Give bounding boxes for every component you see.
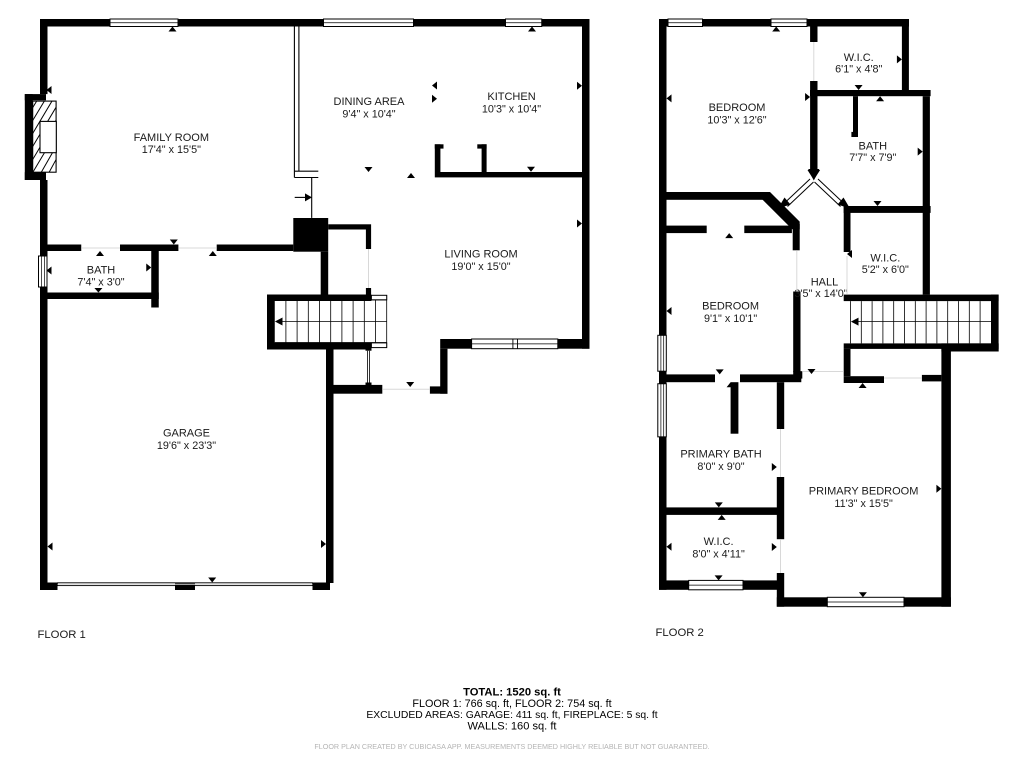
- svg-text:BEDROOM: BEDROOM: [702, 300, 759, 312]
- svg-text:BATH: BATH: [859, 140, 888, 152]
- svg-text:10'3" x 12'6": 10'3" x 12'6": [707, 114, 766, 126]
- svg-text:BATH: BATH: [87, 265, 116, 277]
- svg-text:FLOOR 1: 766 sq. ft, FLOOR 2:: FLOOR 1: 766 sq. ft, FLOOR 2: 754 sq. ft: [412, 698, 611, 710]
- svg-text:FLOOR 1: FLOOR 1: [38, 629, 86, 641]
- svg-text:FAMILY ROOM: FAMILY ROOM: [134, 132, 209, 144]
- svg-text:WALLS: 160 sq. ft: WALLS: 160 sq. ft: [468, 720, 557, 732]
- svg-text:19'0" x 15'0": 19'0" x 15'0": [451, 261, 510, 273]
- svg-text:19'6" x 23'3": 19'6" x 23'3": [157, 440, 216, 452]
- svg-text:3'5" x 14'0": 3'5" x 14'0": [794, 288, 847, 300]
- svg-text:FLOOR PLAN CREATED BY CUBICASA: FLOOR PLAN CREATED BY CUBICASA APP. MEAS…: [314, 742, 709, 751]
- svg-text:W.I.C.: W.I.C.: [704, 536, 734, 548]
- svg-text:8'0" x 9'0": 8'0" x 9'0": [697, 461, 744, 473]
- svg-text:W.I.C.: W.I.C.: [844, 52, 874, 64]
- svg-text:HALL: HALL: [811, 276, 839, 288]
- svg-text:KITCHEN: KITCHEN: [487, 91, 535, 103]
- svg-text:PRIMARY BEDROOM: PRIMARY BEDROOM: [809, 486, 919, 498]
- svg-text:6'1" x 4'8": 6'1" x 4'8": [835, 64, 882, 76]
- svg-text:BEDROOM: BEDROOM: [709, 102, 766, 114]
- svg-text:9'4" x 10'4": 9'4" x 10'4": [342, 108, 395, 120]
- svg-text:W.I.C.: W.I.C.: [870, 252, 900, 264]
- svg-text:9'1" x 10'1": 9'1" x 10'1": [704, 313, 757, 325]
- svg-text:11'3" x 15'5": 11'3" x 15'5": [834, 498, 893, 510]
- svg-text:GARAGE: GARAGE: [163, 428, 210, 440]
- svg-text:DINING AREA: DINING AREA: [334, 96, 406, 108]
- svg-text:TOTAL: 1520 sq. ft: TOTAL: 1520 sq. ft: [463, 687, 561, 699]
- svg-text:FLOOR 2: FLOOR 2: [656, 627, 704, 639]
- svg-text:7'4" x 3'0": 7'4" x 3'0": [77, 277, 124, 289]
- svg-text:8'0" x 4'11": 8'0" x 4'11": [692, 548, 745, 560]
- svg-text:17'4" x 15'5": 17'4" x 15'5": [142, 144, 201, 156]
- svg-text:10'3" x 10'4": 10'3" x 10'4": [482, 103, 541, 115]
- svg-text:7'7" x 7'9": 7'7" x 7'9": [849, 152, 896, 164]
- svg-text:LIVING ROOM: LIVING ROOM: [444, 249, 517, 261]
- svg-text:5'2" x 6'0": 5'2" x 6'0": [862, 264, 909, 276]
- svg-text:PRIMARY BATH: PRIMARY BATH: [680, 449, 761, 461]
